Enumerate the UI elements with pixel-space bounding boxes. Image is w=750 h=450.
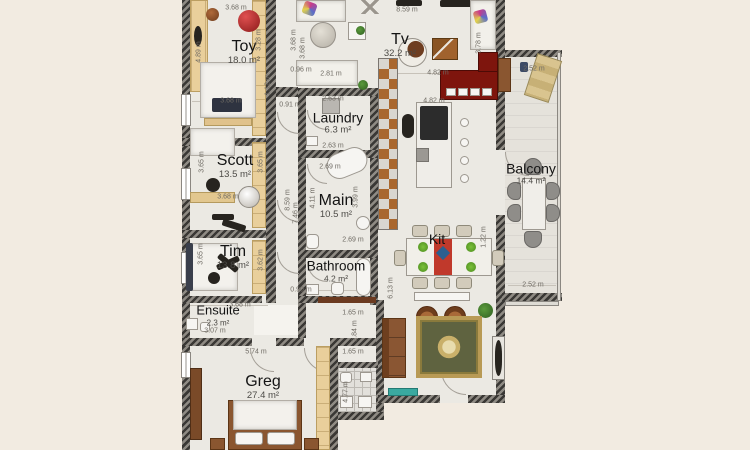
dimension-label: 2.52 m: [523, 66, 544, 73]
dimension-label: 4.82 m: [427, 70, 448, 77]
dimension-label: 3.99 m: [353, 186, 360, 207]
dimension-label: 3.68 m: [217, 194, 238, 201]
dimension-label: 4.11 m: [310, 188, 317, 209]
dimension-label: 0.91 m: [279, 102, 300, 109]
dimension-label: 8.59 m: [285, 189, 292, 210]
dimension-label: 2.52 m: [522, 282, 543, 289]
dimension-label: 3.65 m: [198, 243, 205, 264]
dimension-label: 3.62 m: [258, 249, 265, 270]
dimension-layer: 3.68 m4.89 m3.28 m3.68 m1.12 m0.96 m0.91…: [0, 0, 750, 450]
dimension-label: 3.68 m: [225, 5, 246, 12]
dimension-label: 0.96 m: [290, 67, 311, 74]
dimension-label: 4.77 m: [343, 381, 350, 402]
dimension-label: 3.68 m: [220, 98, 241, 105]
dimension-label: 2.81 m: [320, 71, 341, 78]
dimension-label: 8.59 m: [396, 7, 417, 14]
dimension-label: 1.65 m: [342, 310, 363, 317]
dimension-label: 2.84 m: [352, 320, 359, 341]
dimension-label: 3.28 m: [256, 29, 263, 50]
dimension-label: 3.65 m: [199, 151, 206, 172]
dimension-label: 6.13 m: [388, 277, 395, 298]
dimension-label: 3.68 m: [229, 302, 250, 309]
floor-plan: Toy 18.0 m² Scott 13.5 m² Tim 13.8 m² En…: [0, 0, 750, 450]
dimension-label: 2.63 m: [322, 143, 343, 150]
dimension-label: 7.46 m: [293, 202, 300, 223]
dimension-label: 4.89 m: [196, 41, 203, 62]
dimension-label: 1.22 m: [481, 226, 488, 247]
dimension-label: 3.07 m: [204, 328, 225, 335]
dimension-label: 1.12 m: [265, 74, 272, 95]
dimension-label: 0.90 m: [290, 287, 311, 294]
dimension-label: 5.74 m: [245, 349, 266, 356]
dimension-label: 1.65 m: [342, 349, 363, 356]
dimension-label: 2.69 m: [342, 237, 363, 244]
dimension-label: 3.78 m: [476, 32, 483, 53]
dimension-label: 3.68 m: [291, 29, 298, 50]
dimension-label: 2.69 m: [319, 164, 340, 171]
dimension-label: 4.82 m: [423, 98, 444, 105]
dimension-label: 3.68 m: [300, 37, 307, 58]
dimension-label: 3.65 m: [258, 151, 265, 172]
dimension-label: 2.63 m: [322, 96, 343, 103]
